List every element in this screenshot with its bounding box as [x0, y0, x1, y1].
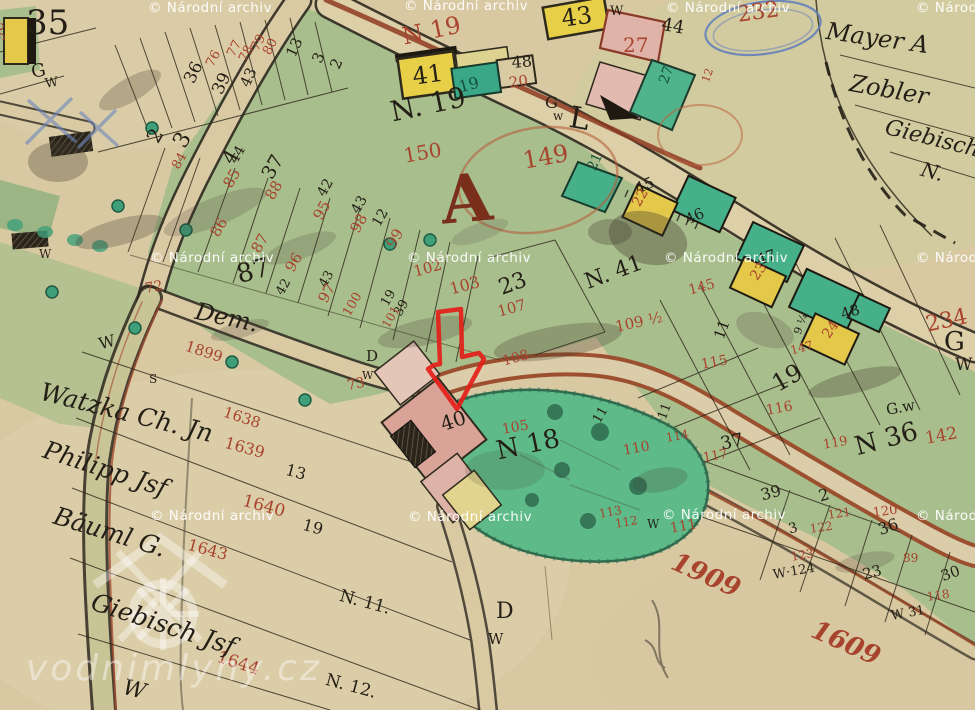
building-19-teal: [451, 62, 501, 98]
site-watermark: vodnimlyny.cz: [26, 648, 322, 689]
map-graphics: [0, 0, 975, 710]
map-scan: 35GW234373639431332444243128742431939N. …: [0, 0, 975, 710]
building-35: [4, 18, 28, 64]
